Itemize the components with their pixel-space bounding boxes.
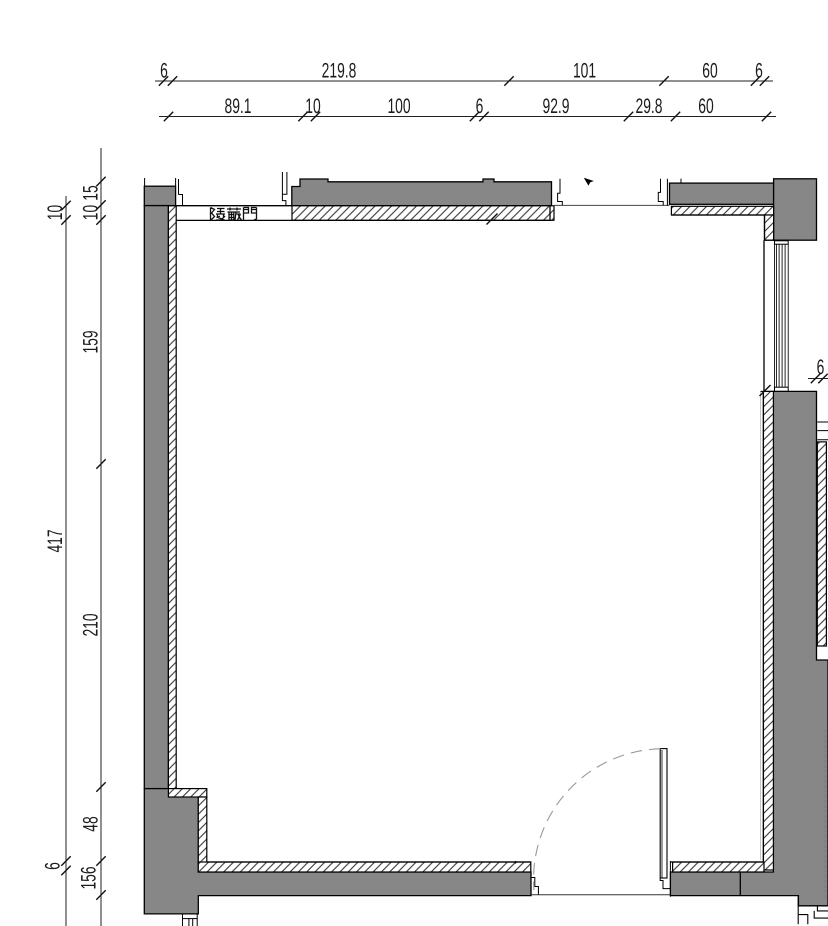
svg-text:6: 6 bbox=[160, 60, 168, 83]
svg-text:10: 10 bbox=[80, 205, 103, 220]
svg-text:100: 100 bbox=[387, 95, 410, 118]
svg-text:89.1: 89.1 bbox=[225, 95, 252, 118]
svg-text:159: 159 bbox=[80, 330, 103, 353]
svg-text:219.8: 219.8 bbox=[322, 60, 357, 83]
svg-text:10: 10 bbox=[44, 205, 67, 220]
svg-text:6: 6 bbox=[42, 862, 65, 870]
svg-text:15: 15 bbox=[80, 185, 103, 200]
svg-text:101: 101 bbox=[573, 60, 596, 83]
svg-text:60: 60 bbox=[698, 95, 713, 118]
svg-text:156: 156 bbox=[78, 866, 101, 889]
svg-text:6: 6 bbox=[817, 356, 825, 379]
svg-text:10: 10 bbox=[305, 95, 320, 118]
svg-text:60: 60 bbox=[702, 60, 717, 83]
svg-text:29.8: 29.8 bbox=[636, 95, 663, 118]
svg-text:210: 210 bbox=[80, 613, 103, 636]
svg-text:417: 417 bbox=[44, 529, 67, 552]
svg-text:48: 48 bbox=[80, 816, 103, 831]
svg-text:6: 6 bbox=[476, 95, 484, 118]
svg-text:6: 6 bbox=[755, 60, 763, 83]
svg-text:92.9: 92.9 bbox=[543, 95, 570, 118]
